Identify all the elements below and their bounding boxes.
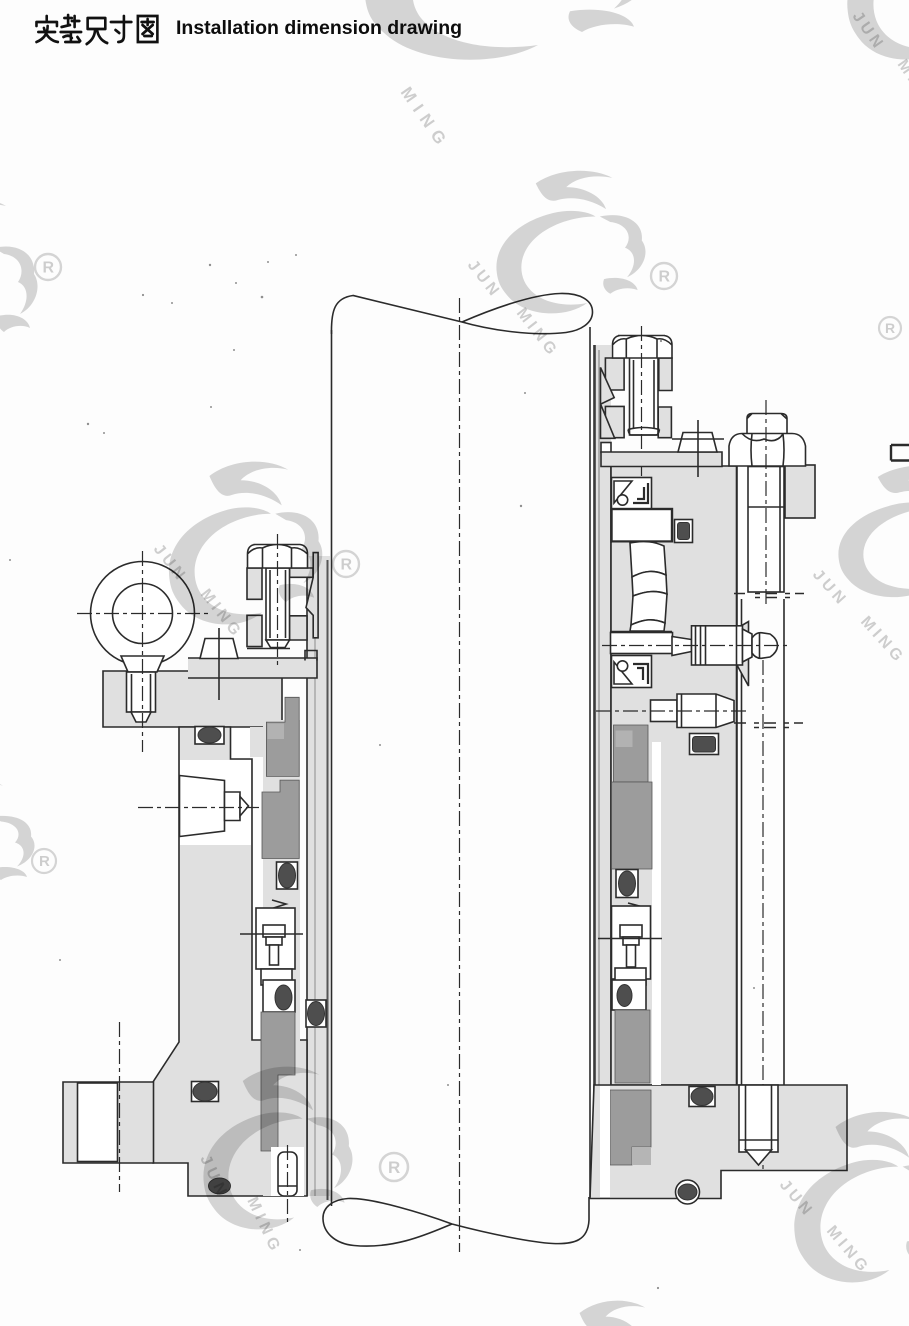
svg-text:Installation dimension drawing: Installation dimension drawing [176, 17, 462, 39]
